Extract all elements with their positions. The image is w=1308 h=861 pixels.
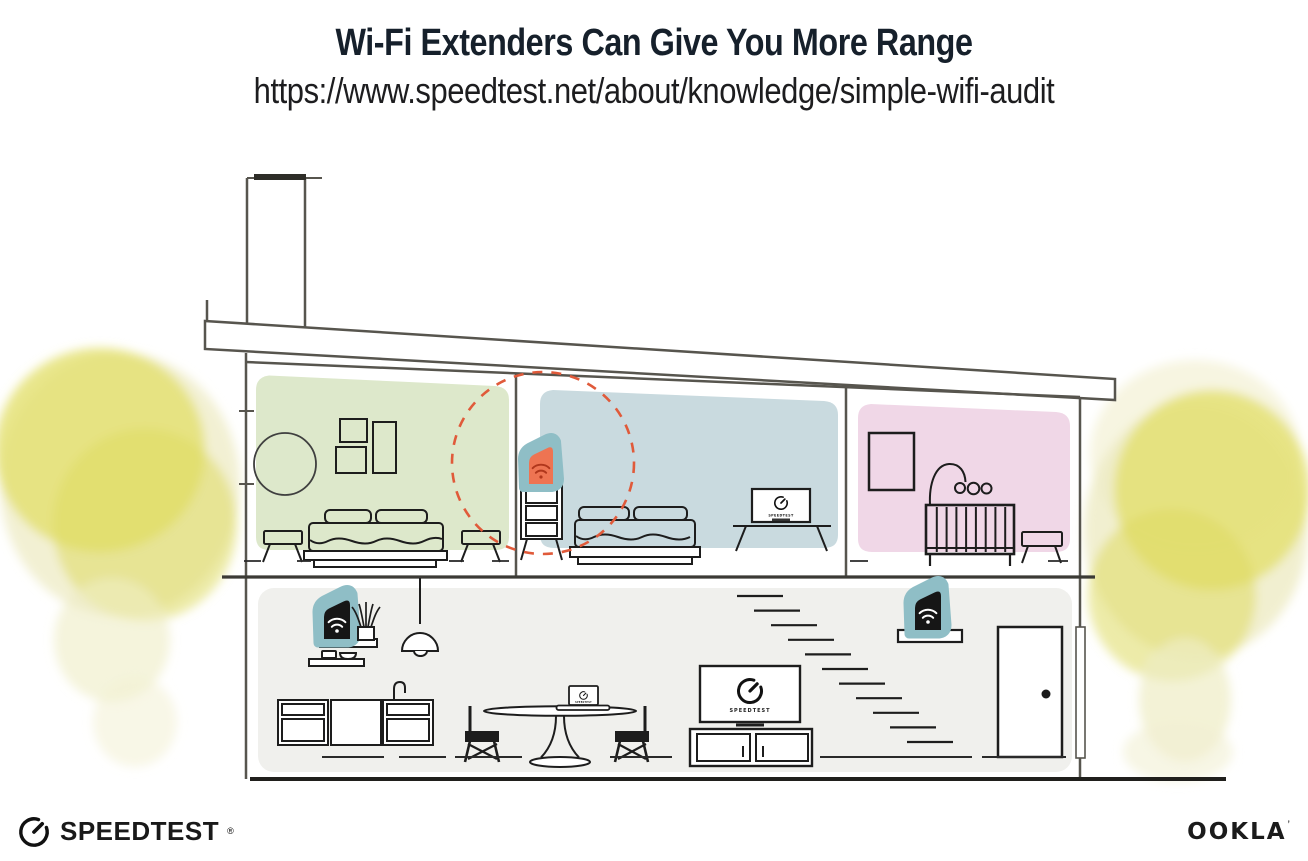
chimney <box>247 174 322 328</box>
speedtest-logo: SPEEDTEST® <box>16 813 234 849</box>
ookla-trademark-icon: ’ <box>1288 819 1290 831</box>
speedometer-icon <box>16 813 52 849</box>
living-tv-screen-label: SPEEDTEST <box>729 708 770 714</box>
speedtest-logo-text: SPEEDTEST <box>60 816 219 847</box>
foliage-left <box>0 348 240 767</box>
bed-base <box>304 551 447 560</box>
bed-base <box>578 557 692 564</box>
wifi-extender-upstairs <box>522 437 560 488</box>
living-room-tv: SPEEDTEST <box>690 666 812 766</box>
ookla-logo: OOKLA ’ <box>1187 819 1290 845</box>
door-knob <box>1042 690 1051 699</box>
registered-trademark-icon: ® <box>227 826 234 836</box>
door-side-trim <box>1076 627 1085 758</box>
bed-base <box>570 547 700 557</box>
house-illustration: SPEEDTEST <box>0 0 1308 861</box>
bedroom-tv-screen-label: SPEEDTEST <box>768 514 794 518</box>
wall-shelf <box>309 659 364 666</box>
infographic-canvas: Wi-Fi Extenders Can Give You More Range … <box>0 0 1308 861</box>
wifi-router-kitchen <box>317 590 356 643</box>
laptop-screen-label: SPEEDTEST <box>575 701 592 704</box>
media-console <box>690 729 812 766</box>
cup <box>322 651 336 658</box>
ookla-logo-text: OOKLA <box>1187 819 1286 845</box>
bed-base <box>314 560 436 567</box>
room-blue-wall <box>540 390 838 548</box>
dining-table-base <box>530 757 590 767</box>
bowl <box>340 653 356 659</box>
dresser <box>521 484 562 539</box>
room-pink-wall <box>858 404 1070 552</box>
foliage-right <box>1084 360 1308 782</box>
